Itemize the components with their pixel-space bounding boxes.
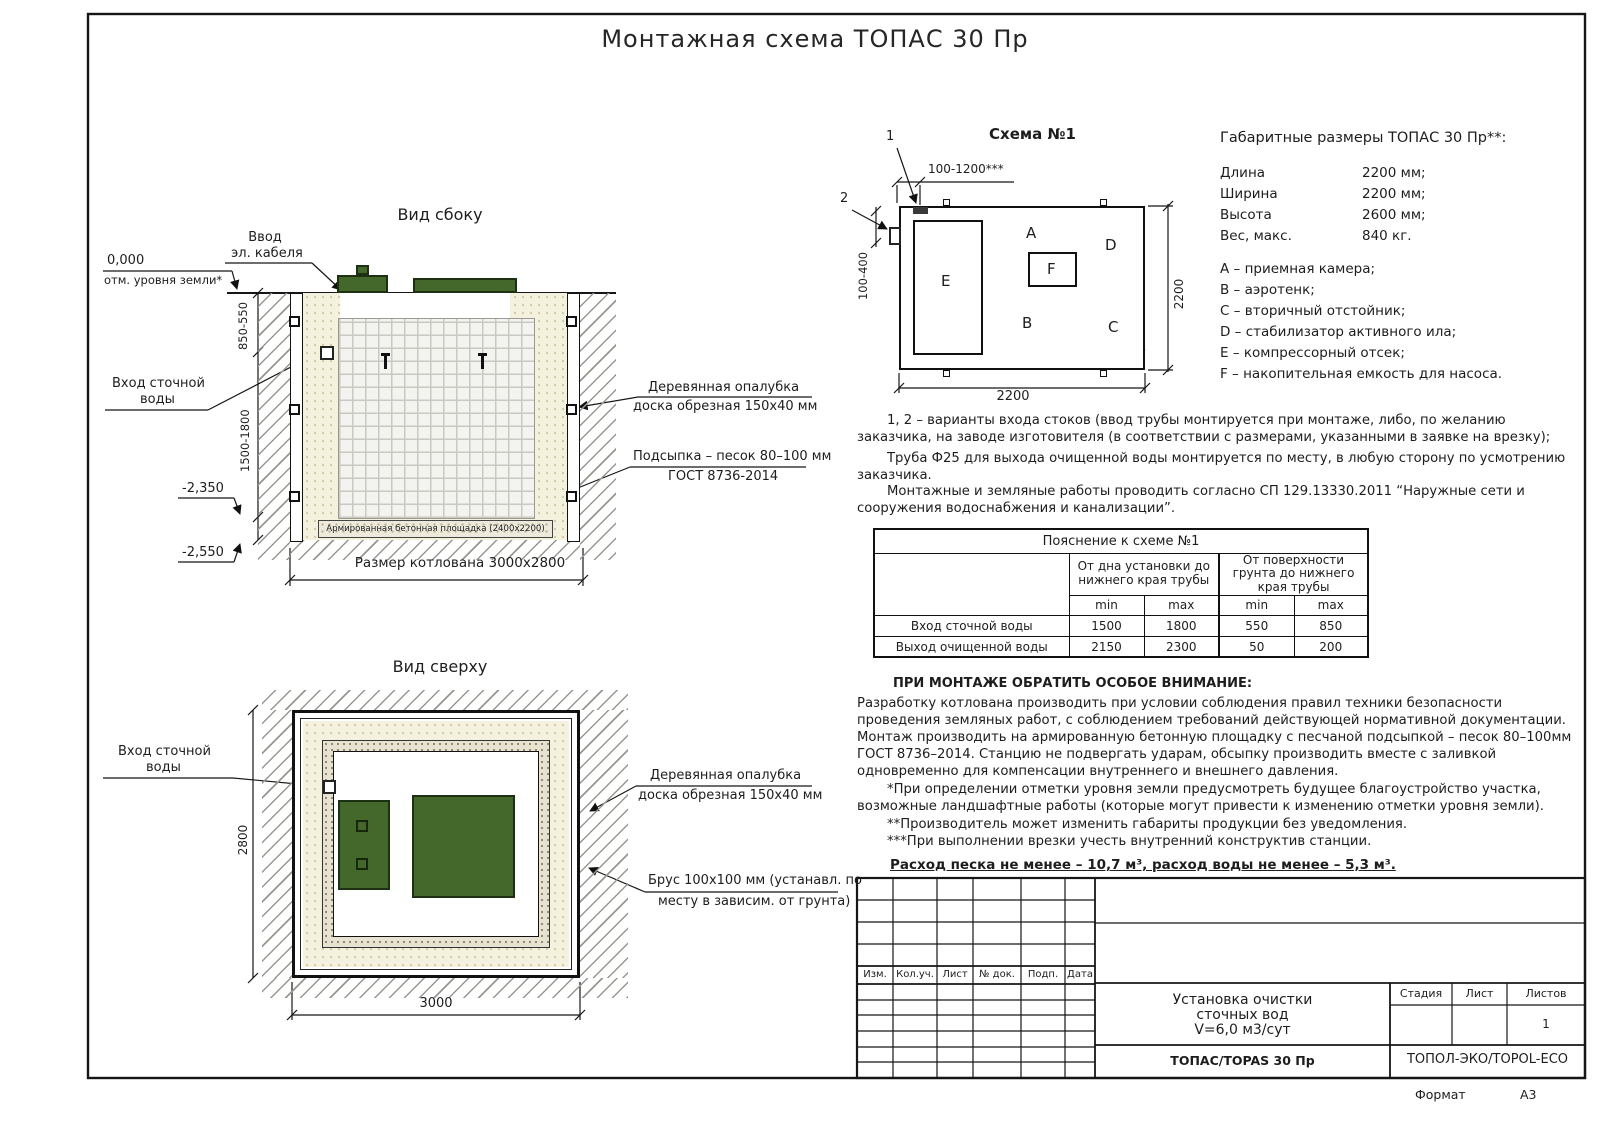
callout-1-label: 1 bbox=[886, 130, 894, 145]
lid-hinge-icon bbox=[943, 199, 950, 206]
dim-2800: 2800 bbox=[236, 820, 250, 860]
side-view-title: Вид сбоку bbox=[385, 206, 495, 224]
lid-latch-icon bbox=[356, 820, 368, 832]
legend-item: F – накопительная емкость для насоса. bbox=[1220, 367, 1502, 383]
topview-hatch-right bbox=[580, 710, 628, 978]
spec-name: Ширина bbox=[1220, 187, 1278, 203]
spec-value: 2200 мм; bbox=[1362, 187, 1426, 203]
legend-item: E – компрессорный отсек; bbox=[1220, 346, 1405, 362]
page-title: Монтажная схема ТОПАС 30 Пр bbox=[565, 26, 1065, 54]
service-lid bbox=[413, 278, 517, 293]
table-title: Пояснение к схеме №1 bbox=[874, 529, 1368, 553]
formwork-board-right bbox=[567, 293, 580, 542]
concrete-slab: Армированная бетонная площадка (2400х220… bbox=[318, 520, 553, 538]
topview-inlet-label-2: воды bbox=[146, 761, 181, 776]
topview-inlet-label: Вход сточной bbox=[118, 745, 211, 760]
cell: 550 bbox=[1219, 615, 1294, 636]
explanation-table: Пояснение к схеме №1 От дна установки до… bbox=[873, 528, 1369, 658]
legend-item: C – вторичный отстойник; bbox=[1220, 304, 1405, 320]
max-header: max bbox=[1144, 595, 1219, 615]
table-col-group-2: От поверхности грунта до нижнего края тр… bbox=[1219, 553, 1368, 595]
sideview-inlet-label: Вход сточной bbox=[112, 377, 205, 392]
legend-item: B – аэротенк; bbox=[1220, 283, 1315, 299]
bedding-label-2: ГОСТ 8736-2014 bbox=[668, 470, 778, 485]
spec-name: Вес, макс. bbox=[1220, 229, 1292, 245]
table-row: Вход сточной воды 1500 1800 550 850 bbox=[874, 615, 1368, 636]
compartment-f-label: F bbox=[1047, 260, 1056, 278]
tb-col-header: Кол.уч. bbox=[893, 969, 937, 981]
compartment-e-label: E bbox=[941, 272, 950, 290]
sheets-header: Листов bbox=[1507, 988, 1585, 1001]
dim-850-550: 850-550 bbox=[236, 300, 250, 352]
formwork-cleat bbox=[289, 316, 300, 327]
beam-label-2: месту в зависим. от грунта) bbox=[658, 895, 850, 910]
drawing-sheet: Монтажная схема ТОПАС 30 Пр Вид сбоку Ар… bbox=[0, 0, 1600, 1128]
note-works: Монтажные и земляные работы проводить со… bbox=[857, 483, 1577, 517]
inlet-variant-1 bbox=[913, 207, 928, 214]
spec-name: Длина bbox=[1220, 166, 1265, 182]
service-lid-small bbox=[338, 800, 390, 890]
bedding-label: Подсыпка – песок 80–100 мм bbox=[633, 450, 831, 465]
footnote-1: *При определении отметки уровня земли пр… bbox=[857, 781, 1579, 815]
compartment-c-label: C bbox=[1108, 318, 1118, 336]
cell: 850 bbox=[1294, 615, 1368, 636]
formwork-cleat bbox=[566, 404, 577, 415]
stage-header: Стадия bbox=[1390, 988, 1452, 1001]
formwork-cleat bbox=[566, 491, 577, 502]
tank-body bbox=[338, 318, 535, 519]
top-view-title: Вид сверху bbox=[385, 658, 495, 676]
company-name: ТОПОЛ-ЭКО/TOPOL-ECO bbox=[1390, 1053, 1585, 1068]
note-pipe: Труба Ф25 для выхода очищенной воды монт… bbox=[857, 450, 1577, 484]
format-value: А3 bbox=[1520, 1088, 1537, 1102]
schema-dim-left: 100-400 bbox=[856, 250, 870, 302]
dim-3000: 3000 bbox=[410, 997, 462, 1012]
consumption-note: Расход песка не менее – 10,7 м³, расход … bbox=[890, 858, 1396, 874]
cell: 2150 bbox=[1069, 636, 1144, 657]
formwork-board-left bbox=[290, 293, 303, 542]
lid-latch-icon bbox=[356, 858, 368, 870]
topview-hatch-left bbox=[262, 710, 292, 978]
legend-item: A – приемная камера; bbox=[1220, 262, 1375, 278]
concrete-slab-label: Армированная бетонная площадка (2400х220… bbox=[326, 524, 545, 534]
legend-item: D – стабилизатор активного ила; bbox=[1220, 325, 1456, 341]
table-col-group-1: От дна установки до нижнего края трубы bbox=[1069, 553, 1219, 595]
topview-hatch-bottom bbox=[262, 978, 628, 998]
tb-col-header: Лист bbox=[937, 969, 973, 981]
sideview-inlet-label-2: воды bbox=[140, 393, 175, 408]
lid-hinge-icon bbox=[943, 370, 950, 377]
pit-size-dim: Размер котлована 3000х2800 bbox=[340, 556, 580, 572]
zero-level-mark: 0,000 bbox=[107, 254, 144, 269]
callout-2-label: 2 bbox=[840, 192, 848, 207]
doc-name-2: сточных вод bbox=[1095, 1007, 1390, 1023]
formwork-cleat bbox=[289, 404, 300, 415]
doc-name: Установка очистки bbox=[1095, 992, 1390, 1008]
callout-2-leader bbox=[852, 210, 887, 229]
min-header: min bbox=[1069, 595, 1144, 615]
schema-dim-right: 2200 bbox=[1172, 276, 1186, 312]
anchor-pin-icon bbox=[481, 356, 484, 369]
cell: 200 bbox=[1294, 636, 1368, 657]
ground-hatch-left bbox=[258, 293, 290, 560]
table-corner-cell bbox=[874, 553, 1069, 615]
topview-formwork-label-2: доска обрезная 150х40 мм bbox=[638, 789, 822, 804]
formwork-cleat bbox=[289, 491, 300, 502]
tb-col-header: Подп. bbox=[1021, 969, 1065, 981]
cable-label: Ввод bbox=[235, 231, 295, 246]
lid-hinge-icon bbox=[1100, 199, 1107, 206]
tb-col-header: № док. bbox=[973, 969, 1021, 981]
spec-name: Высота bbox=[1220, 208, 1272, 224]
dim-1500-1800: 1500-1800 bbox=[238, 412, 252, 472]
max-header: max bbox=[1294, 595, 1368, 615]
schema-dim-bottom: 2200 bbox=[990, 390, 1036, 405]
callout-1-leader bbox=[897, 148, 916, 203]
format-label: Формат bbox=[1415, 1088, 1466, 1102]
ground-level-note: отм. уровня земли* bbox=[104, 274, 222, 287]
footnote-3: ***При выполнении врезки учесть внутренн… bbox=[857, 833, 1579, 850]
footnote-2: **Производитель может изменить габариты … bbox=[857, 816, 1579, 833]
service-lid bbox=[337, 275, 388, 293]
specs-title: Габаритные размеры ТОПАС 30 Пр**: bbox=[1220, 130, 1506, 147]
sheets-value: 1 bbox=[1507, 1018, 1585, 1032]
schema-title: Схема №1 bbox=[975, 126, 1090, 143]
row-label: Выход очищенной воды bbox=[874, 636, 1069, 657]
compartment-b-label: B bbox=[1022, 314, 1032, 332]
spec-value: 2600 мм; bbox=[1362, 208, 1426, 224]
topview-hatch-top bbox=[262, 690, 628, 710]
topview-formwork-label: Деревянная опалубка bbox=[650, 769, 801, 784]
cell: 1800 bbox=[1144, 615, 1219, 636]
cell: 1500 bbox=[1069, 615, 1144, 636]
product-name: ТОПАС/TOPAS 30 Пр bbox=[1095, 1054, 1390, 1068]
note-variants: 1, 2 – варианты входа стоков (ввод трубы… bbox=[857, 412, 1577, 446]
service-lid-large bbox=[412, 795, 515, 898]
tank-neck bbox=[340, 293, 510, 318]
topview-inlet-stub bbox=[323, 780, 336, 794]
beam-label: Брус 100х100 мм (устанавл. по bbox=[648, 874, 862, 889]
sideview-formwork-label: Деревянная опалубка bbox=[648, 381, 799, 396]
attention-body: Разработку котлована производить при усл… bbox=[857, 695, 1579, 780]
anchor-pin-icon bbox=[384, 356, 387, 369]
lid-vent-icon bbox=[356, 265, 369, 275]
inlet-pipe-stub bbox=[320, 346, 334, 360]
doc-name-3: V=6,0 м3/сут bbox=[1095, 1022, 1390, 1038]
spec-value: 840 кг. bbox=[1362, 229, 1412, 245]
tb-col-header: Дата bbox=[1065, 969, 1095, 981]
cell: 50 bbox=[1219, 636, 1294, 657]
tb-col-header: Изм. bbox=[857, 969, 893, 981]
spec-value: 2200 мм; bbox=[1362, 166, 1426, 182]
sheet-header: Лист bbox=[1452, 988, 1507, 1001]
lid-hinge-icon bbox=[1100, 370, 1107, 377]
ground-hatch-right bbox=[580, 293, 616, 560]
table-row: Выход очищенной воды 2150 2300 50 200 bbox=[874, 636, 1368, 657]
compartment-a-label: A bbox=[1026, 224, 1036, 242]
schema-dim-top: 100-1200*** bbox=[928, 163, 1004, 177]
inlet-variant-2 bbox=[889, 227, 901, 245]
row-label: Вход сточной воды bbox=[874, 615, 1069, 636]
mark-minus-2550: -2,550 bbox=[182, 546, 224, 561]
attention-heading: ПРИ МОНТАЖЕ ОБРАТИТЬ ОСОБОЕ ВНИМАНИЕ: bbox=[893, 677, 1252, 692]
min-header: min bbox=[1219, 595, 1294, 615]
cable-label-2: эл. кабеля bbox=[222, 247, 312, 262]
cell: 2300 bbox=[1144, 636, 1219, 657]
sideview-formwork-label-2: доска обрезная 150х40 мм bbox=[633, 400, 817, 415]
formwork-cleat bbox=[566, 316, 577, 327]
mark-minus-2350: -2,350 bbox=[182, 482, 224, 497]
compartment-d-label: D bbox=[1105, 236, 1117, 254]
